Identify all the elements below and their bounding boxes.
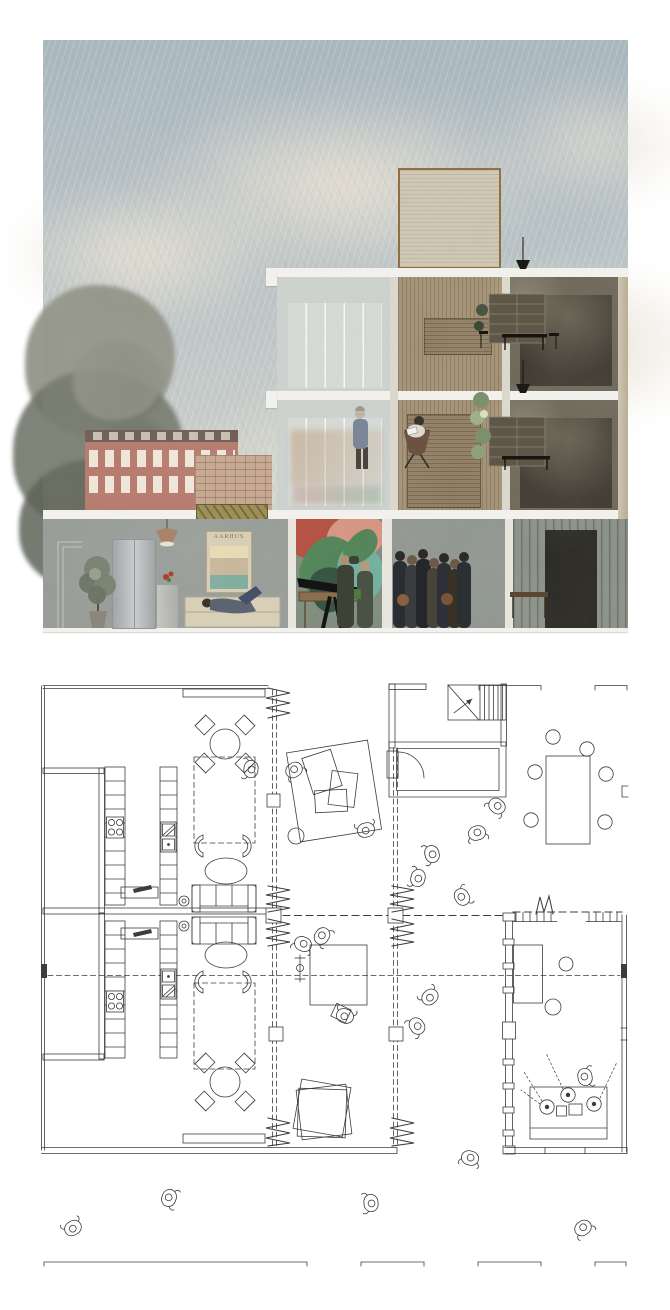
turntable [561,1088,575,1102]
lounge-chair [243,835,251,857]
plan-envelope [42,686,398,1154]
atrium-frame-upper [277,277,390,391]
stool [545,999,561,1015]
project-table [310,945,367,1005]
dark-doorway [545,530,597,628]
floor-plan [0,655,670,1310]
poster-cityscape [210,546,248,576]
lounge-chair [195,835,203,857]
section-rendering: AARHUS [43,40,628,632]
music-studio [503,913,628,1155]
terrace-bench [183,689,265,697]
turntable [540,1100,554,1114]
sofa [192,917,256,944]
rug [205,858,247,884]
atrium-frame-lower [277,400,390,510]
atrium-glass-upper [288,303,382,388]
fridge [112,539,156,629]
pier-tab [266,391,277,408]
facade-openings-bottom [44,1262,626,1266]
lounge-chair [195,971,203,993]
column [389,1027,403,1041]
ground-pier [382,519,392,628]
pedestal [157,585,178,628]
column [267,794,280,807]
ground-pier [288,519,296,628]
turntable [587,1097,601,1111]
section-mark [41,964,47,978]
glass-reflection [293,486,381,504]
column-pier [390,277,398,510]
stool [288,828,304,844]
timber-room-lower [398,400,502,510]
dark-interior [520,295,612,386]
roof-slab [266,268,628,277]
stair [448,685,506,720]
round-table [210,729,240,759]
round-table [210,1067,240,1097]
plan-people [60,758,597,1241]
floor-slab [266,391,628,400]
mural-atelier [296,519,382,628]
edge-pier [618,277,628,519]
project-table [286,740,381,842]
column-pier [502,277,510,510]
stool [559,957,573,971]
workshop-tables [286,740,381,1140]
ground-pier [505,519,513,628]
kitchen-south [105,921,189,1058]
chair [331,1003,351,1022]
roof-volume [398,168,501,269]
poster: AARHUS [206,531,252,593]
living-south [192,917,256,1111]
kitchen-north [105,767,189,906]
entry-vestibule [387,742,506,797]
wall-return [622,786,628,797]
long-table [524,730,628,844]
dining-room-upper [510,277,618,391]
dormer-row [93,432,233,440]
poster-title: AARHUS [207,534,251,540]
terrace-bench [183,1134,265,1143]
gathering-hall [392,519,505,628]
pier-tab [266,268,277,286]
sink [161,822,176,852]
living-north [192,715,256,912]
dining-room-lower [510,400,618,510]
dark-interior [520,418,612,508]
poster-water [210,575,248,589]
glass-reflection [291,430,383,485]
timber-room-upper [398,277,502,391]
concrete-anteroom [513,519,628,628]
column [269,1027,283,1041]
timber-sliding-door [407,414,481,508]
presentation-board: AARHUS [0,0,670,1310]
desk [514,945,543,1003]
timber-panel [424,318,492,355]
rug [205,942,247,968]
ground-slab [43,510,628,519]
lounge-chair [243,971,251,993]
structural-grid [41,690,627,1146]
